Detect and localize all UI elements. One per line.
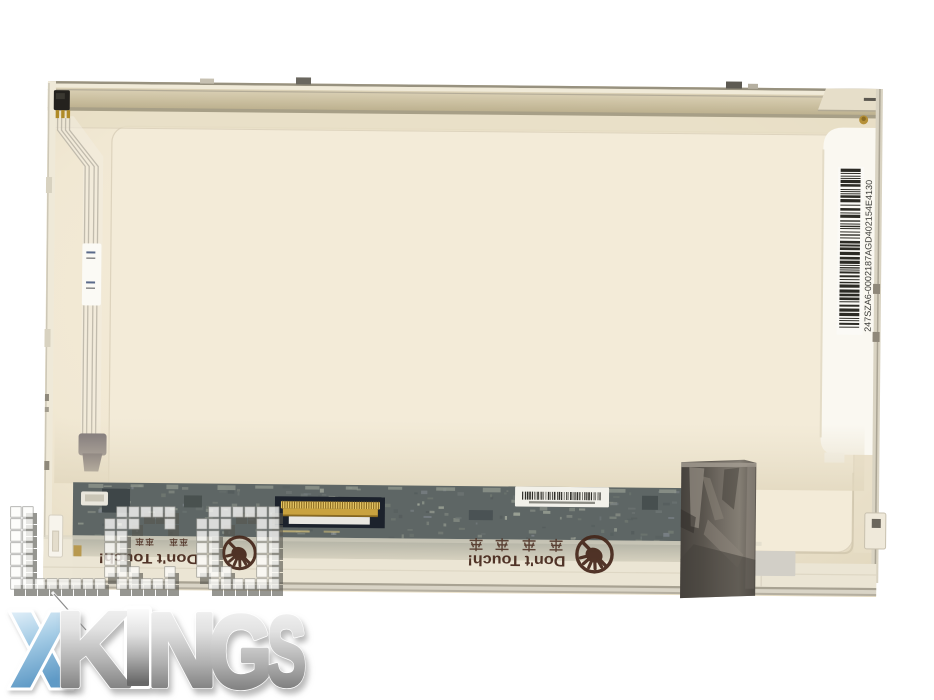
svg-text:Don't Touch!: Don't Touch! [467, 551, 565, 569]
svg-text:247SZA6-0002187AGD402154E4130: 247SZA6-0002187AGD402154E4130 [863, 180, 874, 332]
svg-text:N: N [147, 593, 217, 700]
svg-text:G: G [209, 595, 272, 700]
svg-text:K: K [56, 591, 130, 700]
svg-text:S: S [267, 596, 306, 700]
